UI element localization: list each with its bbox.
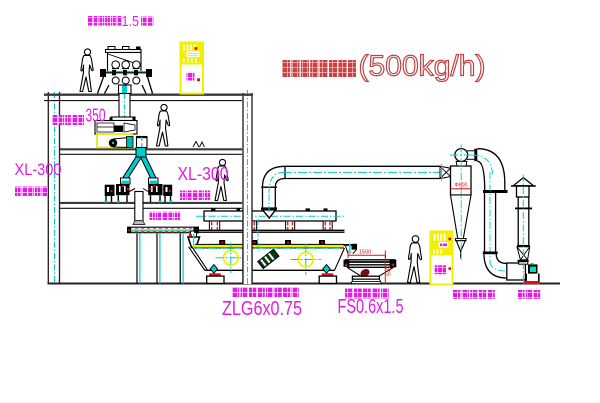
svg-text:350: 350: [86, 106, 106, 126]
svg-text:XL-300: XL-300: [15, 160, 62, 179]
svg-text:ZLG6x0.75: ZLG6x0.75: [222, 298, 302, 320]
svg-text:XL-300: XL-300: [178, 164, 229, 184]
svg-text:1.5: 1.5: [122, 14, 140, 30]
svg-text:Φ600: Φ600: [455, 182, 468, 188]
svg-text:945: 945: [387, 267, 393, 276]
svg-text:(500kg/h): (500kg/h): [359, 51, 486, 83]
svg-text:FS0.6x1.5: FS0.6x1.5: [338, 296, 404, 318]
svg-text:1500: 1500: [359, 250, 371, 256]
